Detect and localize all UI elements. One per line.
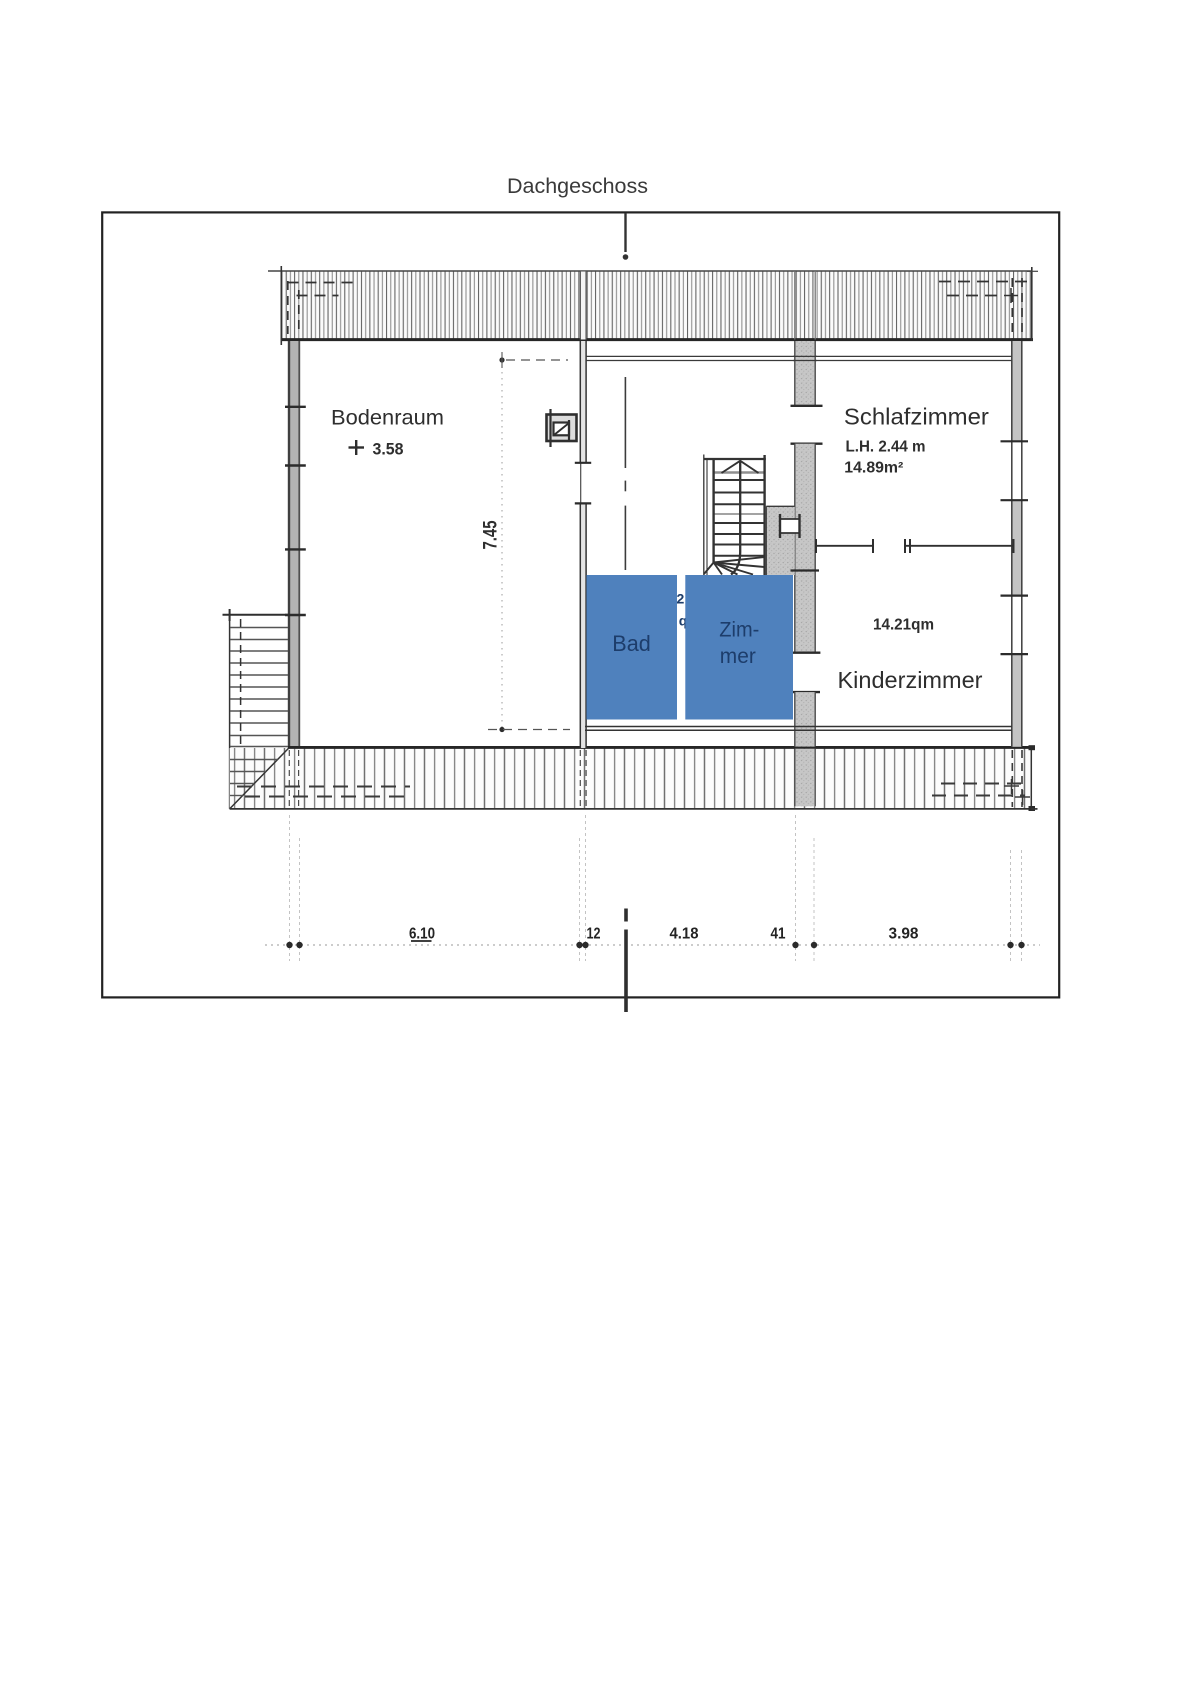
svg-text:14.21qm: 14.21qm [873, 617, 934, 634]
svg-text:14.89m²: 14.89m² [844, 460, 903, 477]
svg-text:4.18: 4.18 [670, 926, 699, 943]
svg-text:7.45: 7.45 [480, 520, 502, 549]
svg-text:Kinderzimmer: Kinderzimmer [838, 667, 983, 693]
svg-text:L.H. 2.44 m: L.H. 2.44 m [846, 439, 926, 456]
svg-text:3.58: 3.58 [373, 441, 404, 459]
svg-text:Bodenraum: Bodenraum [331, 407, 444, 430]
svg-text:6.10: 6.10 [409, 926, 435, 943]
svg-text:Zim-: Zim- [719, 618, 759, 642]
svg-text:mer: mer [720, 644, 756, 668]
svg-text:3.98: 3.98 [889, 926, 919, 943]
svg-text:Bad: Bad [612, 631, 651, 656]
svg-text:41: 41 [771, 926, 786, 943]
svg-text:Dachgeschoss: Dachgeschoss [507, 175, 648, 198]
svg-text:12: 12 [587, 926, 601, 943]
svg-text:Schlafzimmer: Schlafzimmer [844, 404, 989, 430]
svg-text:2: 2 [677, 591, 685, 607]
